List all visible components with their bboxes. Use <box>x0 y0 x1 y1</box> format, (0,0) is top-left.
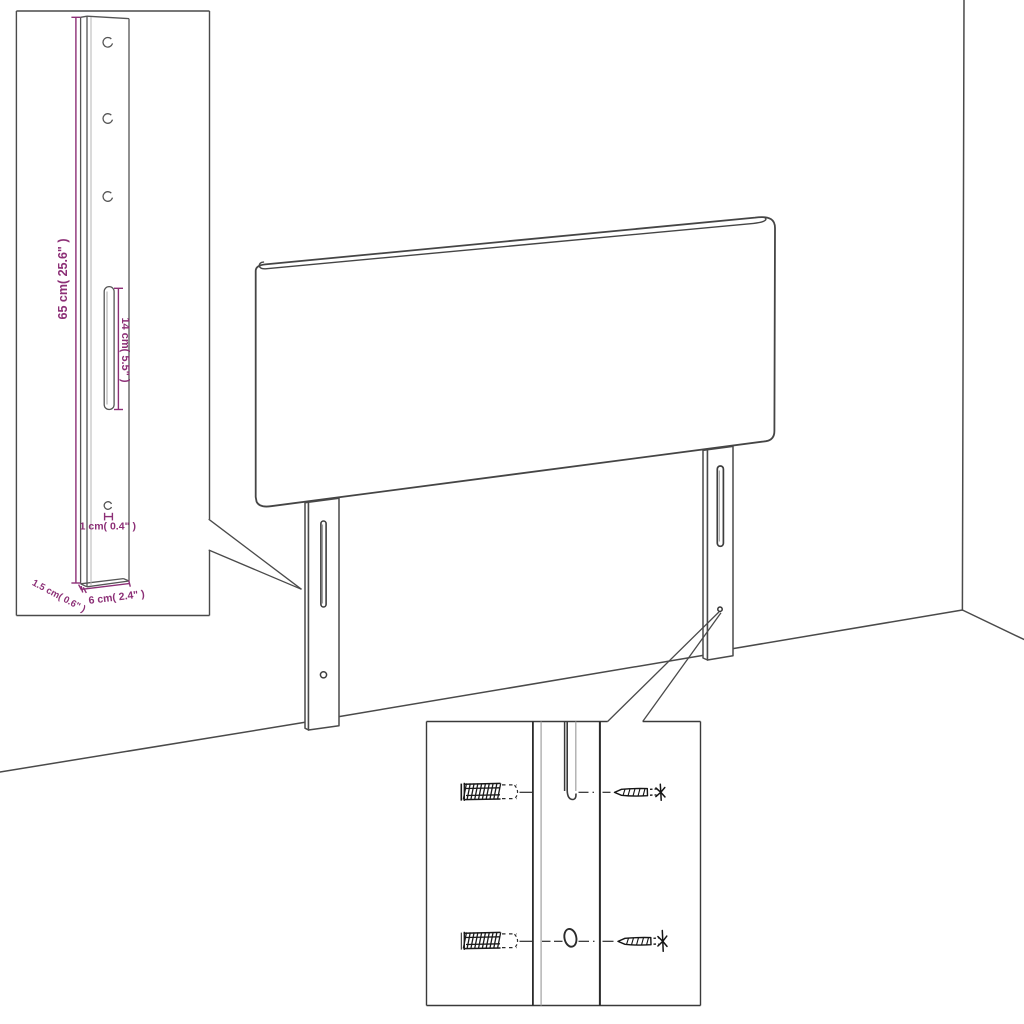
svg-text:14 cm( 5.5" ): 14 cm( 5.5" ) <box>119 317 131 382</box>
svg-text:65 cm( 25.6" ): 65 cm( 25.6" ) <box>56 239 70 320</box>
svg-text:1 cm( 0.4" ): 1 cm( 0.4" ) <box>80 521 136 533</box>
